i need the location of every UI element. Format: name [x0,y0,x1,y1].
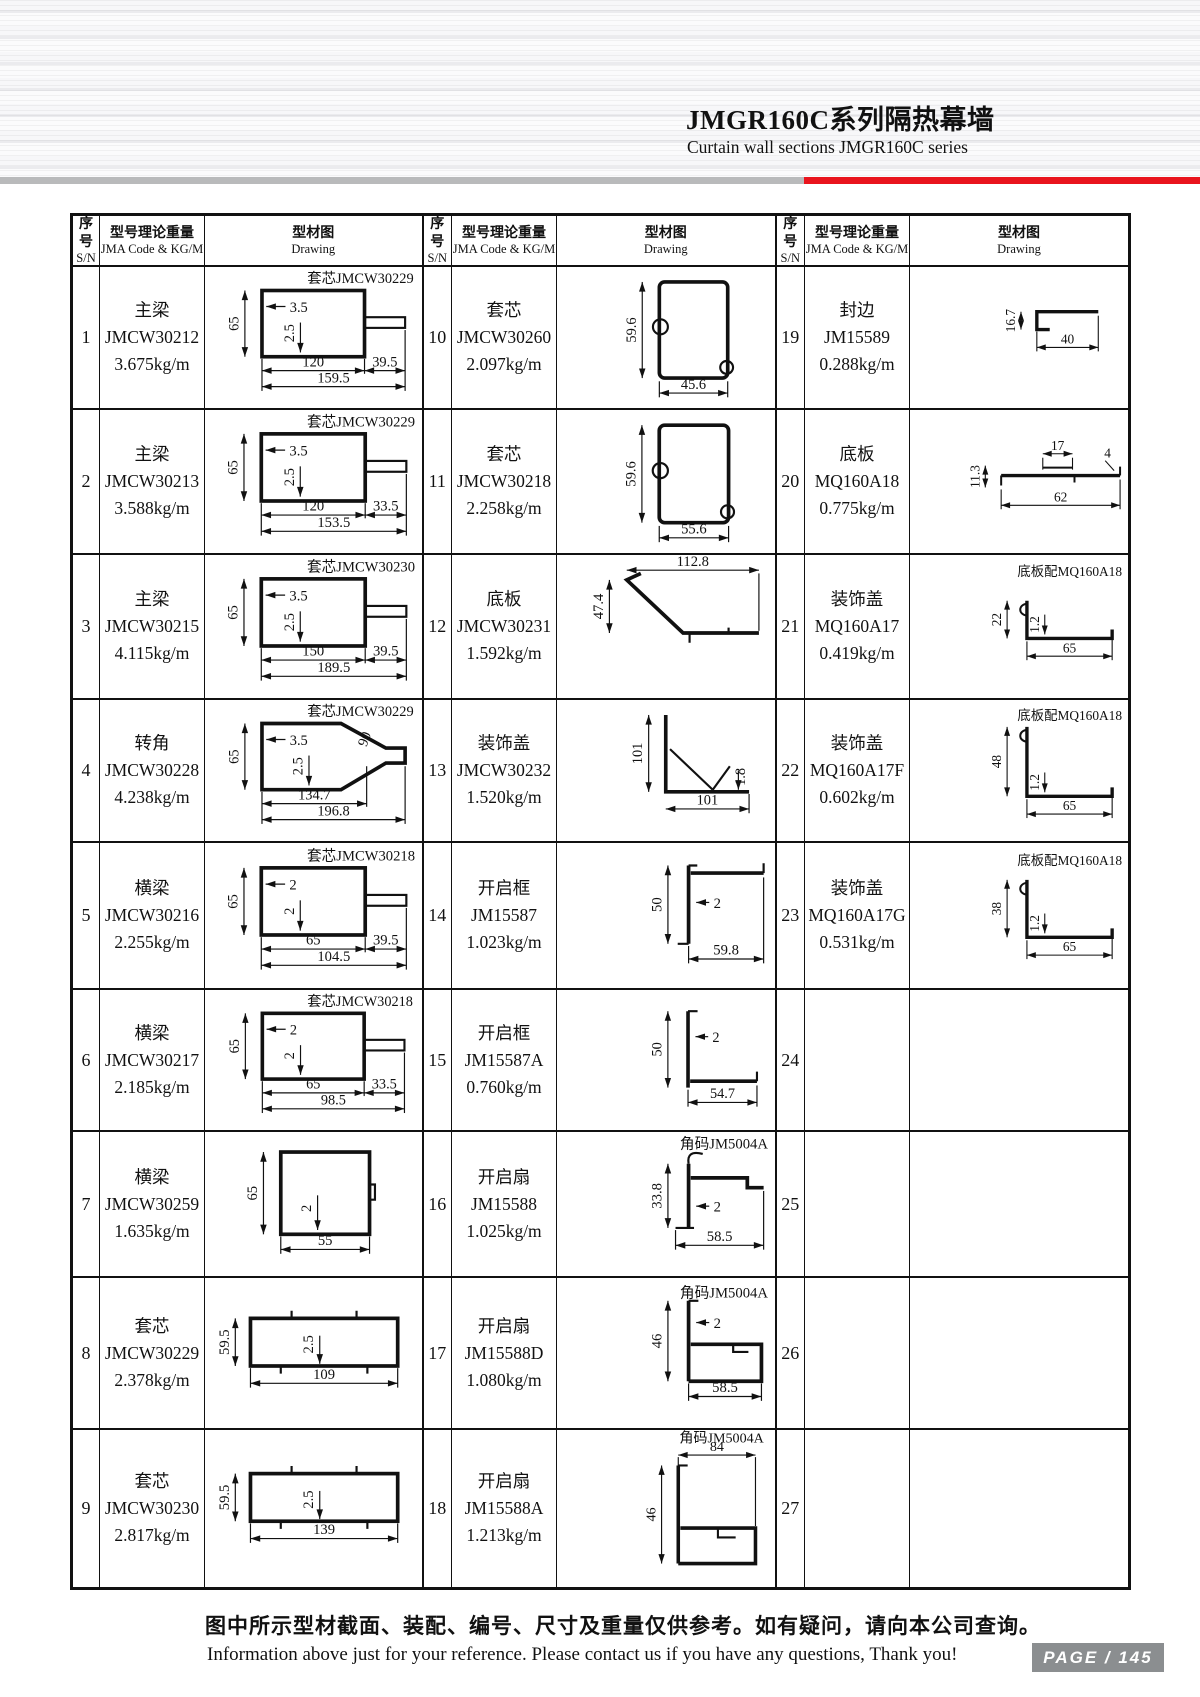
profile-code: JM15588 [452,1191,556,1218]
drawing-cell: 33.8258.5角码JM5004A [557,1131,776,1277]
code-cell: 装饰盖MQ160A17F0.602kg/m [805,699,910,842]
svg-text:65: 65 [225,460,241,475]
divider-bar-red [804,177,1200,184]
code-cell: 主梁JMCW302154.115kg/m [100,554,205,699]
profile-code: JMCW30216 [100,902,204,929]
profile-drawing: 653.52.515039.5189.5套芯JMCW30230 [205,555,422,698]
profile-name: 底板 [805,441,909,468]
profile-weight: 3.675kg/m [100,351,204,378]
drawing-cell: 50254.7 [557,989,776,1131]
profile-weight: 0.288kg/m [805,351,909,378]
svg-text:65: 65 [226,750,242,764]
svg-text:59.8: 59.8 [713,943,739,959]
sn-cell: 11 [423,409,452,554]
svg-text:120: 120 [302,355,324,371]
profile-section-svg: 381.265底板配MQ160A18 [910,843,1128,988]
profile-section-svg: 65255 [205,1132,422,1276]
code-cell: 主梁JMCW302133.588kg/m [100,409,205,554]
svg-text:59.6: 59.6 [623,462,639,488]
code-cell: 封边JM155890.288kg/m [805,266,910,409]
svg-text:58.5: 58.5 [707,1229,733,1245]
svg-text:2: 2 [282,908,298,915]
code-header: 型号理论重量JMA Code & KG/M [452,215,557,267]
drawing-cell: 59.52.5139 [205,1429,423,1588]
svg-text:120: 120 [302,499,324,515]
profile-name: 装饰盖 [805,875,909,902]
svg-text:65: 65 [306,1077,320,1093]
profile-weight: 0.760kg/m [452,1074,556,1101]
profile-name: 开启扇 [452,1468,556,1495]
profile-weight: 1.592kg/m [452,640,556,667]
sn-cell: 16 [423,1131,452,1277]
svg-text:46: 46 [643,1508,659,1522]
profile-drawing: 8446角码JM5004A [557,1430,775,1587]
code-cell: 横梁JMCW302591.635kg/m [100,1131,205,1277]
svg-text:角码JM5004A: 角码JM5004A [680,1136,768,1153]
page-number-box: PAGE / 145 [1032,1643,1164,1672]
sn-cell: 18 [423,1429,452,1588]
profile-code: JMCW30215 [100,613,204,640]
code-cell: 开启框JM15587A0.760kg/m [452,989,557,1131]
profile-code: JMCW30260 [452,324,556,351]
svg-text:套芯JMCW30229: 套芯JMCW30229 [307,270,413,287]
sn-cell: 4 [72,699,100,842]
drawing-cell: 59.52.5109 [205,1277,423,1429]
drawing-cell [910,989,1130,1131]
profile-weight: 3.588kg/m [100,495,204,522]
profile-name: 装饰盖 [452,730,556,757]
svg-text:2: 2 [712,1030,719,1046]
profile-drawing: 653.52.590134.7196.8套芯JMCW30229 [205,700,422,841]
profile-code: JMCW30213 [100,468,204,495]
drawing-header: 型材图Drawing [205,215,423,267]
profile-weight: 0.775kg/m [805,495,909,522]
profile-section-svg: 653.52.512033.5153.5套芯JMCW30229 [205,410,422,553]
sn-cell: 20 [776,409,805,554]
profile-code: JMCW30228 [100,757,204,784]
profile-drawing: 381.265底板配MQ160A18 [910,843,1128,988]
drawing-cell: 381.265底板配MQ160A18 [910,842,1130,989]
svg-text:150: 150 [302,644,324,660]
profile-section-svg: 481.265底板配MQ160A18 [910,700,1128,841]
profile-drawing: 59.645.6 [557,267,775,408]
profile-weight: 1.023kg/m [452,929,556,956]
drawing-cell: 65226533.598.5套芯JMCW30218 [205,989,423,1131]
profile-section-svg: 653.52.590134.7196.8套芯JMCW30229 [205,700,422,841]
footer-note-cn: 图中所示型材截面、装配、编号、尺寸及重量仅供参考。如有疑问，请向本公司查询。 [205,1610,1041,1640]
svg-text:角码JM5004A: 角码JM5004A [679,1431,764,1447]
sn-cell: 27 [776,1429,805,1588]
sn-cell: 23 [776,842,805,989]
profile-weight: 1.635kg/m [100,1218,204,1245]
sn-header: 序号S/N [72,215,100,267]
profile-section-svg: 653.52.515039.5189.5套芯JMCW30230 [205,555,422,698]
sn-header: 序号S/N [423,215,452,267]
code-cell: 开启扇JM155881.025kg/m [452,1131,557,1277]
profile-drawing: 59.52.5109 [205,1278,422,1428]
profile-drawing: 16.740 [910,267,1128,408]
profile-weight: 1.213kg/m [452,1522,556,1549]
striped-header-band [0,0,1200,177]
svg-text:2: 2 [714,896,721,912]
code-cell: 底板JMCW302311.592kg/m [452,554,557,699]
drawing-cell: 59.655.6 [557,409,776,554]
page-title-cn: JMGR160C系列隔热幕墙 [686,98,994,137]
code-cell: 横梁JMCW302172.185kg/m [100,989,205,1131]
profile-drawing: 50259.8 [557,843,775,988]
code-cell: 装饰盖MQ160A170.419kg/m [805,554,910,699]
svg-text:39.5: 39.5 [373,644,399,660]
profile-weight: 1.080kg/m [452,1367,556,1394]
svg-text:59.5: 59.5 [217,1330,233,1356]
drawing-cell [910,1277,1130,1429]
profile-drawing: 33.8258.5角码JM5004A [557,1132,775,1276]
profile-drawing: 653.52.512033.5153.5套芯JMCW30229 [205,410,422,553]
code-cell [805,989,910,1131]
profile-code: MQ160A17G [805,902,909,929]
profile-drawing: 65226533.598.5套芯JMCW30218 [205,990,422,1130]
profile-weight: 4.115kg/m [100,640,204,667]
code-cell [805,1429,910,1588]
svg-text:65: 65 [1063,799,1077,814]
svg-text:54.7: 54.7 [710,1087,735,1103]
svg-text:153.5: 153.5 [317,515,350,531]
profile-weight: 2.817kg/m [100,1522,204,1549]
svg-text:套芯JMCW30229: 套芯JMCW30229 [307,414,415,431]
sn-cell: 6 [72,989,100,1131]
sn-cell: 3 [72,554,100,699]
drawing-cell: 8446角码JM5004A [557,1429,776,1588]
drawing-cell: 16.740 [910,266,1130,409]
profile-weight: 1.025kg/m [452,1218,556,1245]
svg-text:3.5: 3.5 [289,589,307,605]
code-cell: 开启扇JM15588A1.213kg/m [452,1429,557,1588]
sn-cell: 19 [776,266,805,409]
profile-code: MQ160A18 [805,468,909,495]
profile-drawing: 65226539.5104.5套芯JMCW30218 [205,843,422,988]
sn-cell: 9 [72,1429,100,1588]
svg-text:2.5: 2.5 [282,613,298,631]
profile-name: 横梁 [100,875,204,902]
profile-code: JM15588D [452,1340,556,1367]
svg-text:2.5: 2.5 [282,468,298,486]
svg-text:196.8: 196.8 [317,804,349,820]
svg-text:65: 65 [1063,940,1077,955]
svg-text:2: 2 [290,1023,297,1039]
profile-section-svg: 653.52.512039.5159.5套芯JMCW30229 [205,267,422,408]
svg-text:65: 65 [227,1039,243,1053]
svg-text:40: 40 [1061,332,1075,347]
svg-text:2: 2 [282,1053,298,1060]
code-cell: 转角JMCW302284.238kg/m [100,699,205,842]
sn-cell: 15 [423,989,452,1131]
svg-text:65: 65 [306,933,321,949]
svg-text:1.8: 1.8 [733,768,749,786]
profile-name: 开启扇 [452,1313,556,1340]
svg-text:17: 17 [1051,438,1065,453]
drawing-cell: 221.265底板配MQ160A18 [910,554,1130,699]
profile-code: JM15587 [452,902,556,929]
sn-header: 序号S/N [776,215,805,267]
divider-bar-gray [0,177,804,184]
code-cell [805,1131,910,1277]
svg-text:套芯JMCW30229: 套芯JMCW30229 [307,703,413,720]
code-header: 型号理论重量JMA Code & KG/M [100,215,205,267]
sn-cell: 21 [776,554,805,699]
code-header: 型号理论重量JMA Code & KG/M [805,215,910,267]
profile-drawing: 481.265底板配MQ160A18 [910,700,1128,841]
svg-text:139: 139 [313,1523,335,1539]
svg-text:3.5: 3.5 [289,444,307,460]
drawing-header: 型材图Drawing [910,215,1130,267]
svg-text:16.7: 16.7 [1003,309,1018,333]
profile-weight: 2.258kg/m [452,495,556,522]
svg-text:2.5: 2.5 [291,758,307,776]
sn-cell: 2 [72,409,100,554]
page-number-label: PAGE / 145 [1043,1648,1152,1668]
sn-cell: 7 [72,1131,100,1277]
profile-name: 底板 [452,586,556,613]
drawing-cell [910,1429,1130,1588]
profile-section-svg: 46258.5角码JM5004A [557,1278,775,1428]
svg-text:套芯JMCW30218: 套芯JMCW30218 [307,848,415,865]
sn-cell: 17 [423,1277,452,1429]
sn-cell: 14 [423,842,452,989]
profiles-table: 序号S/N型号理论重量JMA Code & KG/M型材图Drawing序号S/… [70,213,1131,1590]
profile-code: JMCW30212 [100,324,204,351]
profile-section-svg: 59.52.5139 [205,1430,422,1587]
svg-text:55: 55 [318,1234,333,1250]
svg-text:3.5: 3.5 [290,300,308,316]
svg-text:112.8: 112.8 [677,555,709,570]
profile-code: JMCW30259 [100,1191,204,1218]
sn-cell: 22 [776,699,805,842]
profile-section-svg: 221.265底板配MQ160A18 [910,555,1128,698]
profile-drawing [910,990,1128,1130]
profile-weight: 4.238kg/m [100,784,204,811]
svg-text:62: 62 [1054,490,1067,505]
profile-section-svg: 50259.8 [557,843,775,988]
profile-name: 横梁 [100,1020,204,1047]
svg-text:2: 2 [714,1316,721,1332]
drawing-cell: 59.645.6 [557,266,776,409]
code-cell: 开启扇JM15588D1.080kg/m [452,1277,557,1429]
svg-text:46: 46 [649,1334,665,1349]
svg-text:65: 65 [225,894,241,909]
sn-cell: 12 [423,554,452,699]
profile-drawing: 1011011.8 [557,700,775,841]
profile-drawing [910,1430,1128,1587]
profile-weight: 2.378kg/m [100,1367,204,1394]
svg-text:33.8: 33.8 [649,1183,665,1209]
code-cell: 开启框JM155871.023kg/m [452,842,557,989]
svg-text:50: 50 [649,898,665,913]
svg-text:39.5: 39.5 [373,933,399,949]
profile-name: 装饰盖 [805,586,909,613]
profile-code: JM15587A [452,1047,556,1074]
drawing-cell: 653.52.512039.5159.5套芯JMCW30229 [205,266,423,409]
svg-text:65: 65 [1063,641,1077,656]
profile-name: 主梁 [100,297,204,324]
profile-drawing: 17411.362 [910,410,1128,553]
profile-section-svg: 112.847.4 [557,555,775,698]
svg-text:134.7: 134.7 [298,788,330,804]
svg-text:109: 109 [313,1367,335,1383]
code-cell: 套芯JMCW302302.817kg/m [100,1429,205,1588]
sn-cell: 25 [776,1131,805,1277]
drawing-cell: 653.52.590134.7196.8套芯JMCW30229 [205,699,423,842]
profile-section-svg: 65226539.5104.5套芯JMCW30218 [205,843,422,988]
svg-text:1.2: 1.2 [1027,915,1042,932]
drawing-cell: 112.847.4 [557,554,776,699]
profile-section-svg: 59.52.5109 [205,1278,422,1428]
svg-text:11.3: 11.3 [967,465,982,488]
profile-drawing [910,1278,1128,1428]
svg-text:4: 4 [1104,446,1111,461]
svg-text:65: 65 [225,605,241,620]
profile-section-svg: 8446角码JM5004A [557,1430,775,1587]
svg-text:47.4: 47.4 [591,593,607,619]
svg-text:58.5: 58.5 [712,1381,738,1397]
svg-text:101: 101 [697,793,719,809]
profile-weight: 2.185kg/m [100,1074,204,1101]
sn-cell: 5 [72,842,100,989]
profile-name: 套芯 [100,1468,204,1495]
sn-cell: 26 [776,1277,805,1429]
profile-code: JM15589 [805,324,909,351]
svg-text:33.5: 33.5 [372,1077,397,1093]
drawing-header: 型材图Drawing [557,215,776,267]
profile-section-svg: 59.655.6 [557,410,775,553]
profile-drawing [910,1132,1128,1276]
svg-text:189.5: 189.5 [317,660,350,676]
sn-cell: 10 [423,266,452,409]
profile-weight: 2.097kg/m [452,351,556,378]
profile-code: JMCW30218 [452,468,556,495]
profile-section-svg: 65226533.598.5套芯JMCW30218 [205,990,422,1130]
svg-text:65: 65 [226,317,242,331]
code-cell: 主梁JMCW302123.675kg/m [100,266,205,409]
svg-text:套芯JMCW30218: 套芯JMCW30218 [307,993,413,1010]
profile-weight: 2.255kg/m [100,929,204,956]
svg-text:1.2: 1.2 [1027,617,1042,634]
drawing-cell: 50259.8 [557,842,776,989]
code-cell [805,1277,910,1429]
profile-code: MQ160A17 [805,613,909,640]
code-cell: 底板MQ160A180.775kg/m [805,409,910,554]
svg-text:159.5: 159.5 [317,371,349,387]
profile-name: 主梁 [100,441,204,468]
code-cell: 套芯JMCW302292.378kg/m [100,1277,205,1429]
sn-cell: 13 [423,699,452,842]
code-cell: 装饰盖JMCW302321.520kg/m [452,699,557,842]
profile-name: 开启框 [452,1020,556,1047]
profile-weight: 0.531kg/m [805,929,909,956]
sn-cell: 24 [776,989,805,1131]
svg-text:3.5: 3.5 [290,733,308,749]
svg-text:2: 2 [714,1200,721,1216]
profile-name: 转角 [100,730,204,757]
sn-cell: 8 [72,1277,100,1429]
profile-code: JMCW30229 [100,1340,204,1367]
svg-text:45.6: 45.6 [681,377,706,393]
svg-text:底板配MQ160A18: 底板配MQ160A18 [1017,853,1122,868]
svg-text:角码JM5004A: 角码JM5004A [680,1285,768,1302]
page-title-en: Curtain wall sections JMGR160C series [687,137,968,158]
profile-drawing: 59.655.6 [557,410,775,553]
svg-text:2: 2 [289,878,296,894]
profile-drawing: 65255 [205,1132,422,1276]
svg-text:59.6: 59.6 [624,318,640,343]
profile-section-svg: 59.645.6 [557,267,775,408]
profile-drawing: 653.52.512039.5159.5套芯JMCW30229 [205,267,422,408]
sn-cell: 1 [72,266,100,409]
code-cell: 套芯JMCW302182.258kg/m [452,409,557,554]
svg-text:104.5: 104.5 [317,949,350,965]
profile-section-svg: 16.740 [910,267,1128,408]
drawing-cell: 653.52.515039.5189.5套芯JMCW30230 [205,554,423,699]
svg-text:59.5: 59.5 [217,1485,233,1511]
code-cell: 横梁JMCW302162.255kg/m [100,842,205,989]
profile-weight: 0.419kg/m [805,640,909,667]
profile-section-svg: 17411.362 [910,410,1128,553]
profile-name: 套芯 [452,297,556,324]
drawing-cell: 46258.5角码JM5004A [557,1277,776,1429]
profile-code: JMCW30230 [100,1495,204,1522]
profile-name: 开启框 [452,875,556,902]
svg-text:90: 90 [355,730,375,749]
profile-drawing: 221.265底板配MQ160A18 [910,555,1128,698]
svg-text:38: 38 [989,902,1004,916]
profile-code: MQ160A17F [805,757,909,784]
svg-text:1.2: 1.2 [1027,774,1042,791]
svg-text:50: 50 [650,1043,666,1057]
svg-text:套芯JMCW30230: 套芯JMCW30230 [307,559,415,576]
svg-text:2.5: 2.5 [282,325,298,343]
drawing-cell: 481.265底板配MQ160A18 [910,699,1130,842]
svg-text:48: 48 [989,755,1004,769]
svg-text:底板配MQ160A18: 底板配MQ160A18 [1017,564,1122,579]
drawing-cell: 17411.362 [910,409,1130,554]
svg-text:22: 22 [989,613,1004,626]
svg-text:2: 2 [299,1205,315,1212]
svg-text:98.5: 98.5 [321,1093,346,1109]
profile-drawing: 50254.7 [557,990,775,1130]
drawing-cell: 653.52.512033.5153.5套芯JMCW30229 [205,409,423,554]
svg-text:2.5: 2.5 [301,1491,317,1509]
drawing-cell: 1011011.8 [557,699,776,842]
profile-drawing: 112.847.4 [557,555,775,698]
profile-name: 开启扇 [452,1164,556,1191]
svg-text:2.5: 2.5 [301,1336,317,1354]
profile-name: 套芯 [100,1313,204,1340]
profile-name: 主梁 [100,586,204,613]
svg-text:39.5: 39.5 [372,355,397,371]
drawing-cell: 65255 [205,1131,423,1277]
svg-text:101: 101 [630,743,646,765]
code-cell: 套芯JMCW302602.097kg/m [452,266,557,409]
drawing-cell: 65226539.5104.5套芯JMCW30218 [205,842,423,989]
profile-section-svg: 1011011.8 [557,700,775,841]
svg-text:65: 65 [245,1186,261,1201]
profile-section-svg: 50254.7 [557,990,775,1130]
footer-note-en: Information above just for your referenc… [207,1644,957,1666]
profile-section-svg: 33.8258.5角码JM5004A [557,1132,775,1276]
profile-name: 横梁 [100,1164,204,1191]
svg-text:33.5: 33.5 [373,499,399,515]
profile-code: JM15588A [452,1495,556,1522]
profile-code: JMCW30232 [452,757,556,784]
